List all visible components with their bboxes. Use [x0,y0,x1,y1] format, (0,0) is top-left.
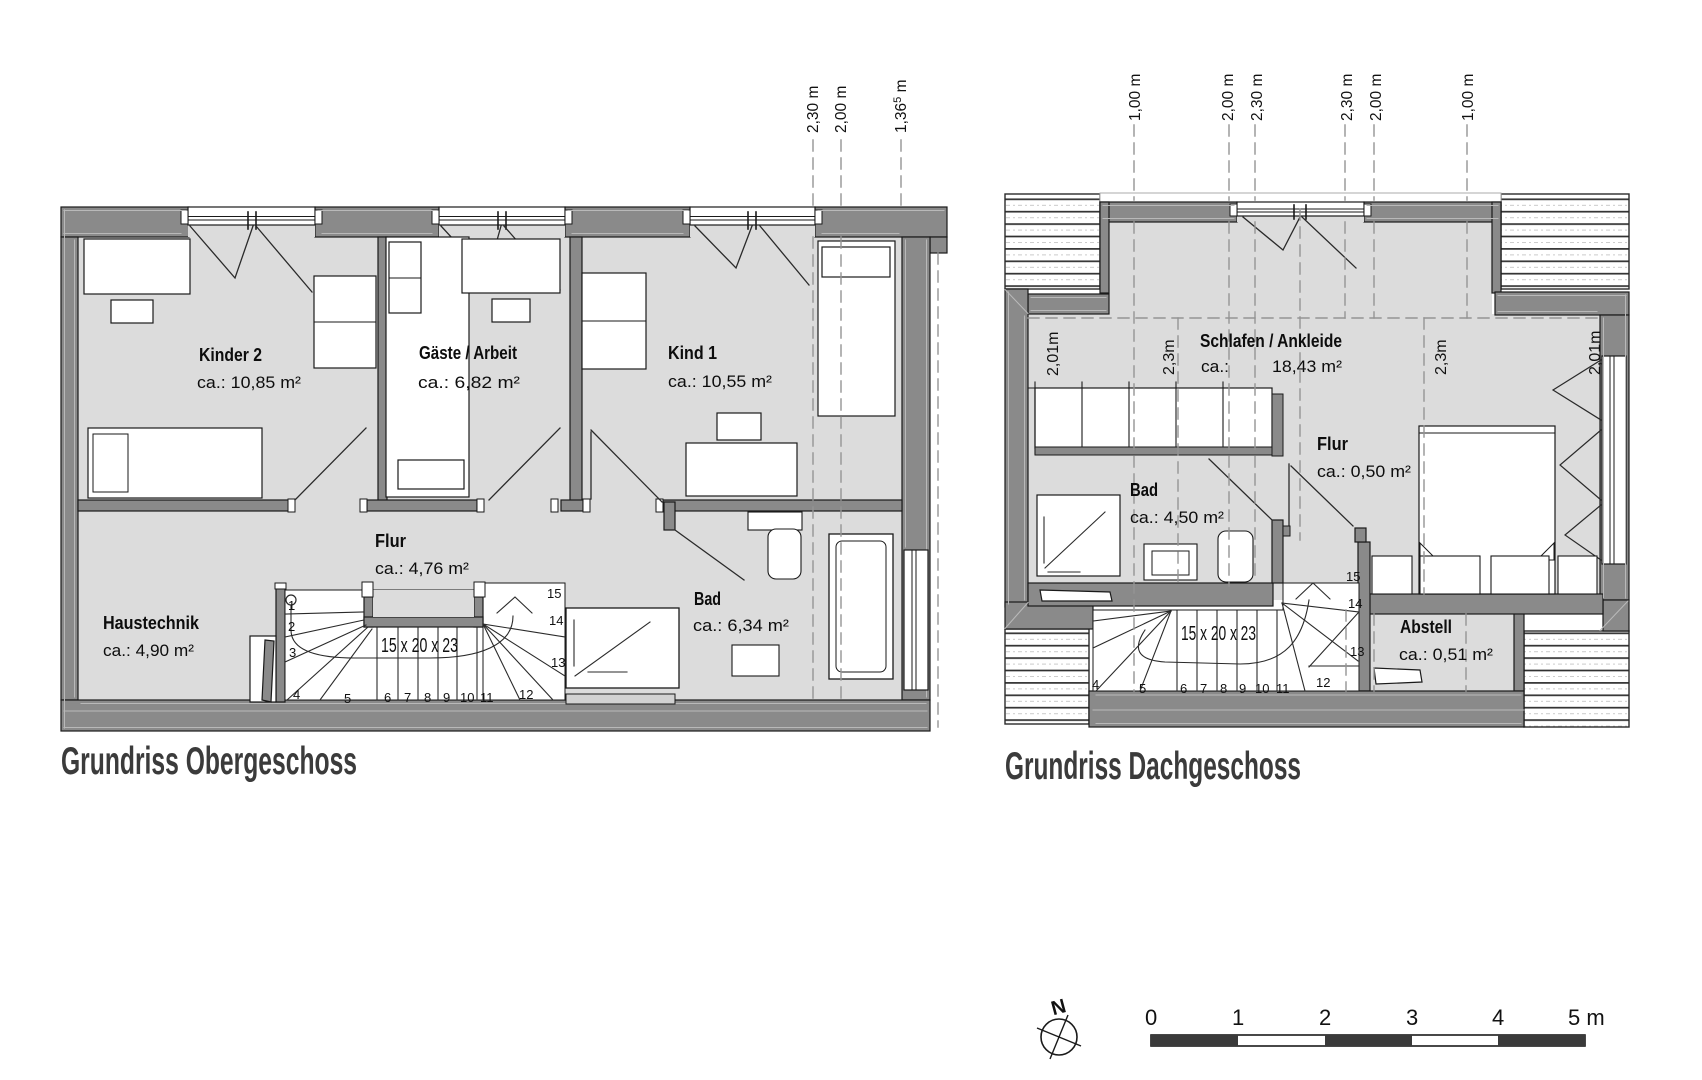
svg-text:Bad: Bad [1130,480,1158,500]
svg-text:12: 12 [1316,675,1330,690]
svg-text:ca.: 4,50 m²: ca.: 4,50 m² [1130,508,1224,527]
svg-text:1,365 m: 1,365 m [892,79,910,133]
svg-text:8: 8 [424,690,431,705]
svg-text:Bad: Bad [694,589,721,609]
svg-text:2,01m: 2,01m [1045,332,1062,376]
svg-text:10: 10 [460,690,474,705]
svg-text:9: 9 [1239,681,1246,696]
svg-text:Schlafen / Ankleide: Schlafen / Ankleide [1200,331,1342,351]
svg-text:15 x 20 x 23: 15 x 20 x 23 [381,635,458,657]
svg-text:15: 15 [1346,569,1360,584]
svg-text:Grundriss Dachgeschoss: Grundriss Dachgeschoss [1005,745,1301,788]
svg-text:ca.:: ca.: [1201,357,1229,376]
svg-text:6: 6 [1180,681,1187,696]
svg-text:Flur: Flur [375,531,406,551]
svg-text:4: 4 [293,687,300,702]
svg-text:Kind 1: Kind 1 [668,343,717,363]
svg-text:2,00 m: 2,00 m [1368,74,1385,121]
svg-text:18,43 m²: 18,43 m² [1272,357,1342,376]
svg-text:10: 10 [1255,681,1269,696]
svg-text:2,30 m: 2,30 m [805,86,822,133]
svg-text:ca.: 4,76 m²: ca.: 4,76 m² [375,559,469,578]
svg-text:13: 13 [551,655,565,670]
svg-text:15: 15 [547,586,561,601]
svg-text:ca.: 6,34 m²: ca.: 6,34 m² [693,616,789,635]
svg-text:1,00 m: 1,00 m [1127,74,1144,121]
svg-text:14: 14 [549,613,563,628]
svg-text:2,3m: 2,3m [1433,339,1450,375]
svg-text:ca.: 10,55 m²: ca.: 10,55 m² [668,372,772,391]
svg-text:ca.: 6,82 m²: ca.: 6,82 m² [418,373,520,392]
svg-text:0: 0 [1145,1005,1157,1030]
svg-text:4: 4 [1092,677,1099,692]
svg-text:ca.: 0,50 m²: ca.: 0,50 m² [1317,462,1411,481]
svg-text:11: 11 [1276,681,1290,696]
svg-text:2,30 m: 2,30 m [1339,74,1356,121]
svg-text:1: 1 [1232,1005,1244,1030]
svg-text:1,00 m: 1,00 m [1460,74,1477,121]
svg-text:7: 7 [404,690,411,705]
svg-text:2,30 m: 2,30 m [1249,74,1266,121]
svg-text:2,3m: 2,3m [1161,339,1178,375]
svg-text:3: 3 [1406,1005,1418,1030]
svg-text:15 x 20 x 23: 15 x 20 x 23 [1181,623,1256,645]
svg-text:Flur: Flur [1317,434,1348,454]
svg-text:9: 9 [443,690,450,705]
svg-text:7: 7 [1200,681,1207,696]
svg-text:2,00 m: 2,00 m [833,86,850,133]
svg-text:Kinder 2: Kinder 2 [199,345,262,365]
svg-text:ca.: 10,85 m²: ca.: 10,85 m² [197,373,301,392]
svg-text:11: 11 [480,690,494,705]
svg-text:Haustechnik: Haustechnik [103,613,200,633]
svg-text:13: 13 [1350,644,1364,659]
svg-text:2: 2 [1319,1005,1331,1030]
svg-text:2,01m: 2,01m [1587,331,1604,375]
svg-text:Gäste / Arbeit: Gäste / Arbeit [419,343,517,363]
svg-text:1: 1 [288,598,295,613]
svg-text:6: 6 [384,690,391,705]
svg-text:2: 2 [288,619,295,634]
svg-text:12: 12 [519,687,533,702]
svg-text:14: 14 [1348,596,1362,611]
svg-text:5: 5 [1139,681,1146,696]
svg-text:2,00 m: 2,00 m [1220,74,1237,121]
svg-text:ca.: 0,51 m²: ca.: 0,51 m² [1399,645,1493,664]
svg-text:8: 8 [1220,681,1227,696]
svg-text:4: 4 [1492,1005,1504,1030]
svg-text:5: 5 [344,691,351,706]
svg-text:5 m: 5 m [1568,1005,1605,1030]
svg-text:3: 3 [289,645,296,660]
svg-text:Abstell: Abstell [1400,617,1452,637]
svg-text:Grundriss Obergeschoss: Grundriss Obergeschoss [61,740,357,783]
svg-text:ca.: 4,90 m²: ca.: 4,90 m² [103,641,194,660]
